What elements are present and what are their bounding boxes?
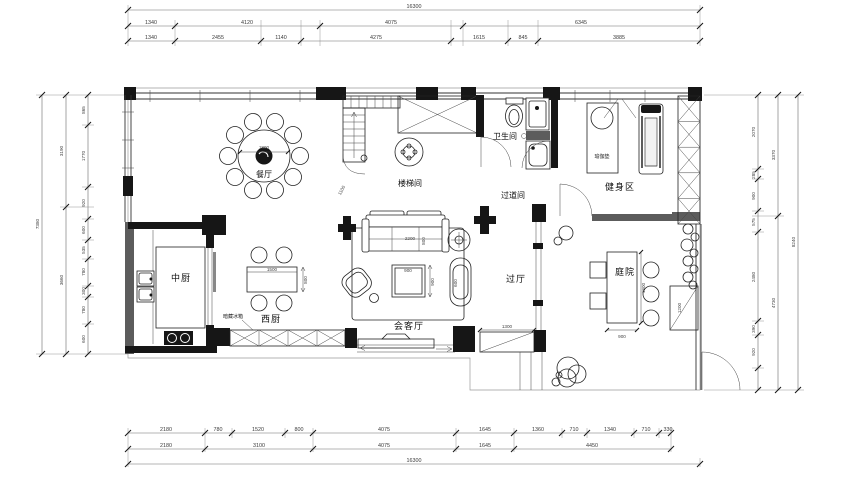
- room-courtyard: 庭院 1800 900 1200: [552, 224, 740, 390]
- note-yoga-mat: 瑜伽垫: [594, 153, 609, 160]
- room-kitchen-west: 1500 800 西厨 暗藏冰箱: [214, 247, 357, 348]
- dim-label: 8240: [791, 236, 796, 247]
- room-label-gym: 健身区: [605, 181, 635, 192]
- dim-label: 900: [751, 192, 756, 200]
- floor-plan-drawing: 16300 1340 4120 4075 6345 1340 2455 1140…: [0, 0, 844, 486]
- dim-label: 4450: [586, 443, 598, 449]
- dim-label: 710: [642, 427, 651, 433]
- dim-label: 2200: [405, 236, 416, 241]
- dim-label: 2180: [160, 427, 172, 433]
- dim-label: 1340: [604, 427, 616, 433]
- room-label-stair: 楼梯间: [398, 178, 422, 188]
- dim-label: 3660: [59, 274, 64, 285]
- dim-label: 390: [751, 325, 756, 333]
- dim-label: 920: [81, 199, 86, 207]
- dim-label: 1200: [677, 302, 682, 313]
- room-gym: 瑜伽垫 健身区: [560, 96, 700, 224]
- dim-label: 900: [618, 334, 626, 339]
- floor-plan-canvas: 16300 1340 4120 4075 6345 1340 2455 1140…: [0, 0, 844, 486]
- dim-label: 1100: [337, 184, 346, 195]
- dim-label: 920: [751, 348, 756, 356]
- dim-label: 4075: [385, 20, 397, 26]
- dim-label: 4075: [378, 443, 390, 449]
- dimensions-left: 865 1770 920 600 535 780 300 780 600 319…: [35, 92, 128, 357]
- dim-label: 800: [295, 427, 304, 433]
- dim-label: 2180: [160, 443, 172, 449]
- dim-label: 7380: [35, 218, 40, 229]
- room-dining: 1800 1100 餐厅: [220, 114, 347, 199]
- dim-label: 1800: [259, 145, 270, 150]
- room-label-dining: 餐厅: [256, 170, 272, 179]
- dim-label: 1645: [479, 427, 491, 433]
- dim-label: 1300: [502, 324, 513, 329]
- dim-label: 300: [81, 287, 86, 295]
- note-hidden-fridge: 暗藏冰箱: [223, 313, 243, 320]
- dim-label: 3190: [59, 145, 64, 156]
- tree: [552, 357, 586, 387]
- dimensions-right: 2070 285 900 575 2480 390 920 3370 4730 …: [704, 92, 804, 393]
- room-label-courtyard: 庭院: [615, 266, 635, 277]
- dim-label: 1340: [145, 35, 157, 41]
- dim-label: 3885: [613, 35, 625, 41]
- room-stair: 楼梯间: [343, 96, 477, 188]
- dim-label: 600: [81, 226, 86, 234]
- dim-label: 16300: [407, 4, 422, 10]
- dim-label: 1500: [267, 267, 278, 272]
- dim-label: 6345: [575, 20, 587, 26]
- dim-label: 845: [519, 35, 528, 41]
- room-living: 2200 800 600 900 900 会客厅: [338, 206, 496, 352]
- dim-label: 3100: [253, 443, 265, 449]
- room-label-kitchen-west: 西厨: [261, 314, 281, 324]
- dim-label: 3370: [771, 149, 776, 160]
- dim-label: 2455: [212, 35, 224, 41]
- room-label-hall: 过厅: [506, 273, 526, 284]
- sofa: [362, 211, 449, 252]
- dim-label: 4730: [771, 297, 776, 308]
- dim-label: 575: [751, 218, 756, 226]
- room-kitchen-cn: 中厨: [128, 215, 226, 346]
- dim-label: 600: [453, 279, 458, 287]
- dim-label: 1615: [473, 35, 485, 41]
- room-bath: 卫生间 过道间: [476, 95, 558, 200]
- dim-label: 600: [81, 335, 86, 343]
- dim-label: 330: [664, 427, 673, 433]
- dim-label: 4120: [241, 20, 253, 26]
- dim-label: 1770: [81, 150, 86, 161]
- dimensions-top: 16300 1340 4120 4075 6345 1340 2455 1140…: [125, 4, 703, 46]
- dim-label: 2480: [751, 271, 756, 282]
- room-label-bath: 卫生间: [493, 131, 517, 141]
- dim-label: 285: [751, 171, 756, 179]
- dim-label: 535: [81, 246, 86, 254]
- dim-label: 900: [404, 268, 412, 273]
- dim-label: 865: [81, 106, 86, 114]
- room-label-living: 会客厅: [394, 320, 424, 331]
- dim-label: 16300: [407, 458, 422, 464]
- dim-label: 4075: [378, 427, 390, 433]
- dim-label: 780: [81, 306, 86, 314]
- dimensions-bottom: 2180 780 1520 800 4075 1645 1360 710 134…: [125, 427, 703, 467]
- dim-label: 780: [81, 268, 86, 276]
- dim-label: 2070: [751, 126, 756, 137]
- dim-label: 1140: [275, 35, 287, 41]
- dim-label: 900: [430, 278, 435, 286]
- armchair: [339, 265, 375, 301]
- dim-label: 710: [570, 427, 579, 433]
- dim-label: 780: [214, 427, 223, 433]
- dim-label: 800: [421, 237, 426, 245]
- dim-label: 4275: [370, 35, 382, 41]
- plants: [554, 224, 699, 289]
- dim-label: 1520: [252, 427, 264, 433]
- dim-label: 1340: [145, 20, 157, 26]
- dim-label: 800: [303, 276, 308, 284]
- room-label-kitchen-cn: 中厨: [171, 272, 191, 283]
- dim-label: 1645: [479, 443, 491, 449]
- dim-label: 1360: [532, 427, 544, 433]
- room-label-corridor: 过道间: [501, 190, 525, 200]
